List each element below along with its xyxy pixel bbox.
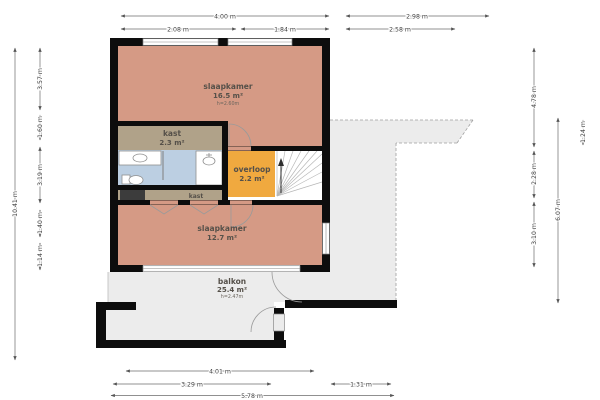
closet-opening-right — [190, 200, 218, 204]
door-opening-landing-bedroom2 — [230, 200, 252, 204]
dim-label: 3.57 m — [37, 68, 44, 90]
dim-label: 10.41 m — [12, 191, 19, 217]
dim-label: 4.01 m — [209, 369, 231, 376]
dim-label: 4.00 m — [214, 14, 236, 21]
dim-label: 1.31 m — [350, 382, 372, 389]
dim-label: 3.10 m — [531, 223, 538, 245]
dim-label: 2.08 m — [167, 27, 189, 34]
dim-label: 2.98 m — [406, 14, 428, 21]
room-name-bedroom1: slaapkamer — [203, 82, 252, 91]
dim-label: 5.78 m — [241, 393, 263, 400]
room-area-balcony: 25.4 m² — [217, 286, 247, 294]
dim-label: 6.07 m — [555, 199, 562, 221]
floor-plan-drawing: slaapkamer 16.5 m² h=2.60m kast 2.3 m² o… — [0, 0, 600, 400]
dim-label: 3.19 m — [37, 164, 44, 186]
room-area-bedroom2: 12.7 m² — [207, 234, 237, 242]
dim-label: 4.78 m — [531, 86, 538, 108]
room-height-balcony: h=2.47m — [221, 294, 244, 300]
roof-side-strip — [330, 143, 396, 300]
dim-label: 2.28 m — [531, 163, 538, 185]
room-area-closet1: 2.3 m² — [159, 139, 184, 147]
dim-label: 1.24 m — [580, 121, 587, 143]
room-name-landing: overloop — [233, 165, 271, 174]
closet-opening-left — [150, 200, 178, 204]
room-height-bedroom1: h=2.60m — [217, 101, 240, 107]
room-area-bedroom1: 16.5 m² — [213, 92, 243, 100]
toilet-bowl-icon — [129, 176, 143, 185]
room-name-bedroom2: slaapkamer — [197, 224, 246, 233]
room-name-balcony: balkon — [218, 277, 246, 286]
balcony-door-opening — [274, 314, 285, 331]
sink-icon — [133, 154, 147, 162]
room-area-landing: 2.2 m² — [239, 175, 264, 183]
door-opening-landing-bedroom1 — [228, 146, 251, 150]
roof-strip — [330, 120, 473, 143]
dim-label: 2.58 m — [389, 27, 411, 34]
dim-label: 1.40 m — [37, 212, 44, 234]
dim-label: 3.29 m — [181, 382, 203, 389]
dim-label: 1.84 m — [274, 27, 296, 34]
shaft-block — [120, 190, 145, 200]
floor-plan-canvas: slaapkamer 16.5 m² h=2.60m kast 2.3 m² o… — [0, 0, 600, 400]
dim-label: 1.14 m — [37, 245, 44, 267]
sink-2-icon — [203, 157, 215, 165]
room-name-closet2: kast — [189, 193, 204, 200]
dim-label: 1.60 m — [37, 116, 44, 138]
room-name-closet1: kast — [163, 129, 182, 138]
room-landing — [228, 151, 275, 197]
